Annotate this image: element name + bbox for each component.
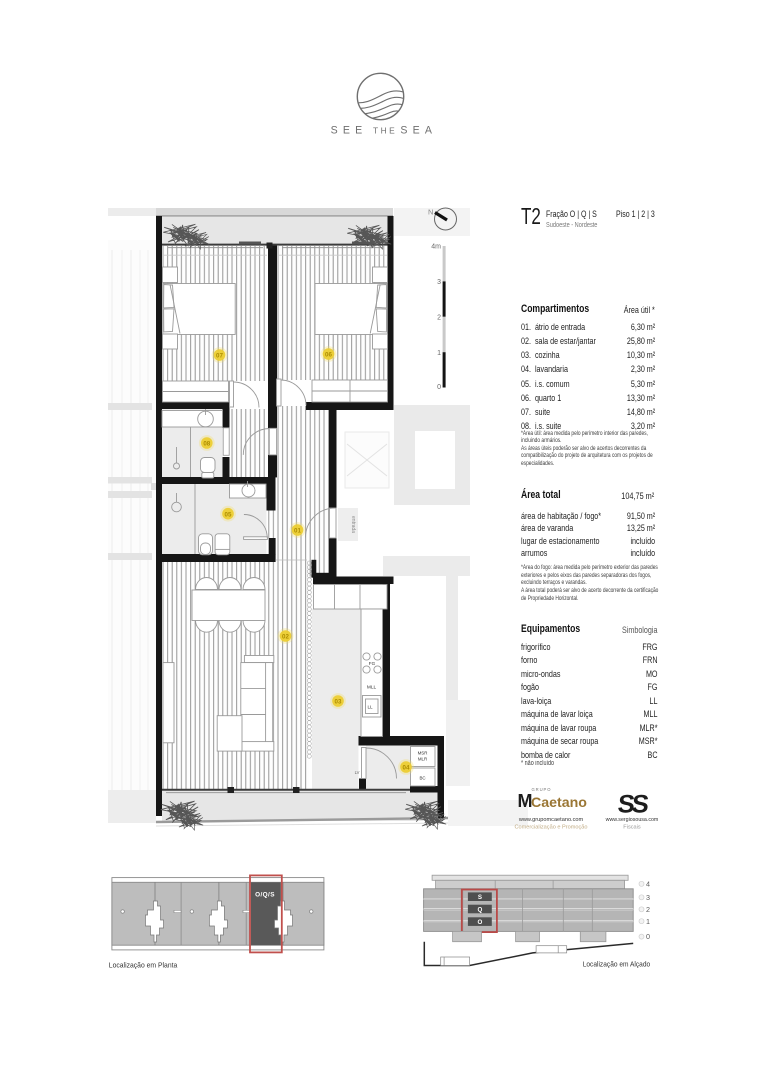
svg-text:THE: THE [373, 126, 397, 136]
svg-text:04: 04 [403, 765, 410, 772]
svg-text:07: 07 [216, 353, 223, 360]
svg-text:1: 1 [437, 350, 441, 357]
svg-text:Comercialização e Promoção: Comercialização e Promoção [514, 825, 587, 831]
svg-text:08: 08 [203, 441, 210, 448]
svg-text:02: 02 [282, 634, 289, 641]
svg-text:Localização em Planta: Localização em Planta [109, 961, 178, 970]
svg-text:05: 05 [225, 511, 232, 518]
svg-text:03: 03 [335, 699, 342, 706]
svg-text:SS: SS [616, 791, 650, 819]
svg-text:Q: Q [477, 906, 482, 913]
svg-text:entrada: entrada [350, 516, 356, 533]
svg-text:SEE: SEE [331, 125, 368, 137]
svg-text:O/Q/S: O/Q/S [255, 892, 275, 899]
svg-text:4m: 4m [431, 244, 441, 251]
svg-text:BC: BC [419, 776, 425, 781]
svg-text:0: 0 [437, 384, 441, 391]
svg-text:4: 4 [646, 879, 650, 888]
svg-text:LL: LL [367, 705, 373, 710]
svg-text:01: 01 [294, 528, 301, 535]
svg-text:2: 2 [646, 905, 650, 914]
svg-text:www.sergiosousa.com: www.sergiosousa.com [606, 817, 659, 823]
svg-text:1: 1 [646, 917, 650, 926]
svg-text:www.grupomcaetano.com: www.grupomcaetano.com [518, 817, 584, 823]
svg-text:LV: LV [355, 770, 360, 775]
svg-text:GRUPO: GRUPO [532, 787, 552, 792]
svg-text:Localização em Alçado: Localização em Alçado [583, 960, 651, 969]
svg-text:0: 0 [646, 932, 650, 941]
svg-text:MLR: MLR [418, 757, 427, 762]
svg-text:FG: FG [369, 661, 376, 666]
svg-text:3: 3 [437, 279, 441, 286]
svg-text:O: O [477, 919, 482, 926]
svg-text:06: 06 [325, 352, 332, 359]
svg-text:N: N [428, 208, 433, 217]
svg-text:2: 2 [437, 315, 441, 322]
svg-text:MLL: MLL [367, 685, 377, 691]
svg-text:3: 3 [646, 893, 650, 902]
svg-text:SEA: SEA [400, 125, 437, 137]
svg-text:MSR: MSR [418, 751, 428, 756]
svg-text:Caetano: Caetano [531, 795, 587, 811]
svg-text:S: S [478, 894, 482, 901]
svg-text:Fiscais: Fiscais [623, 825, 641, 831]
